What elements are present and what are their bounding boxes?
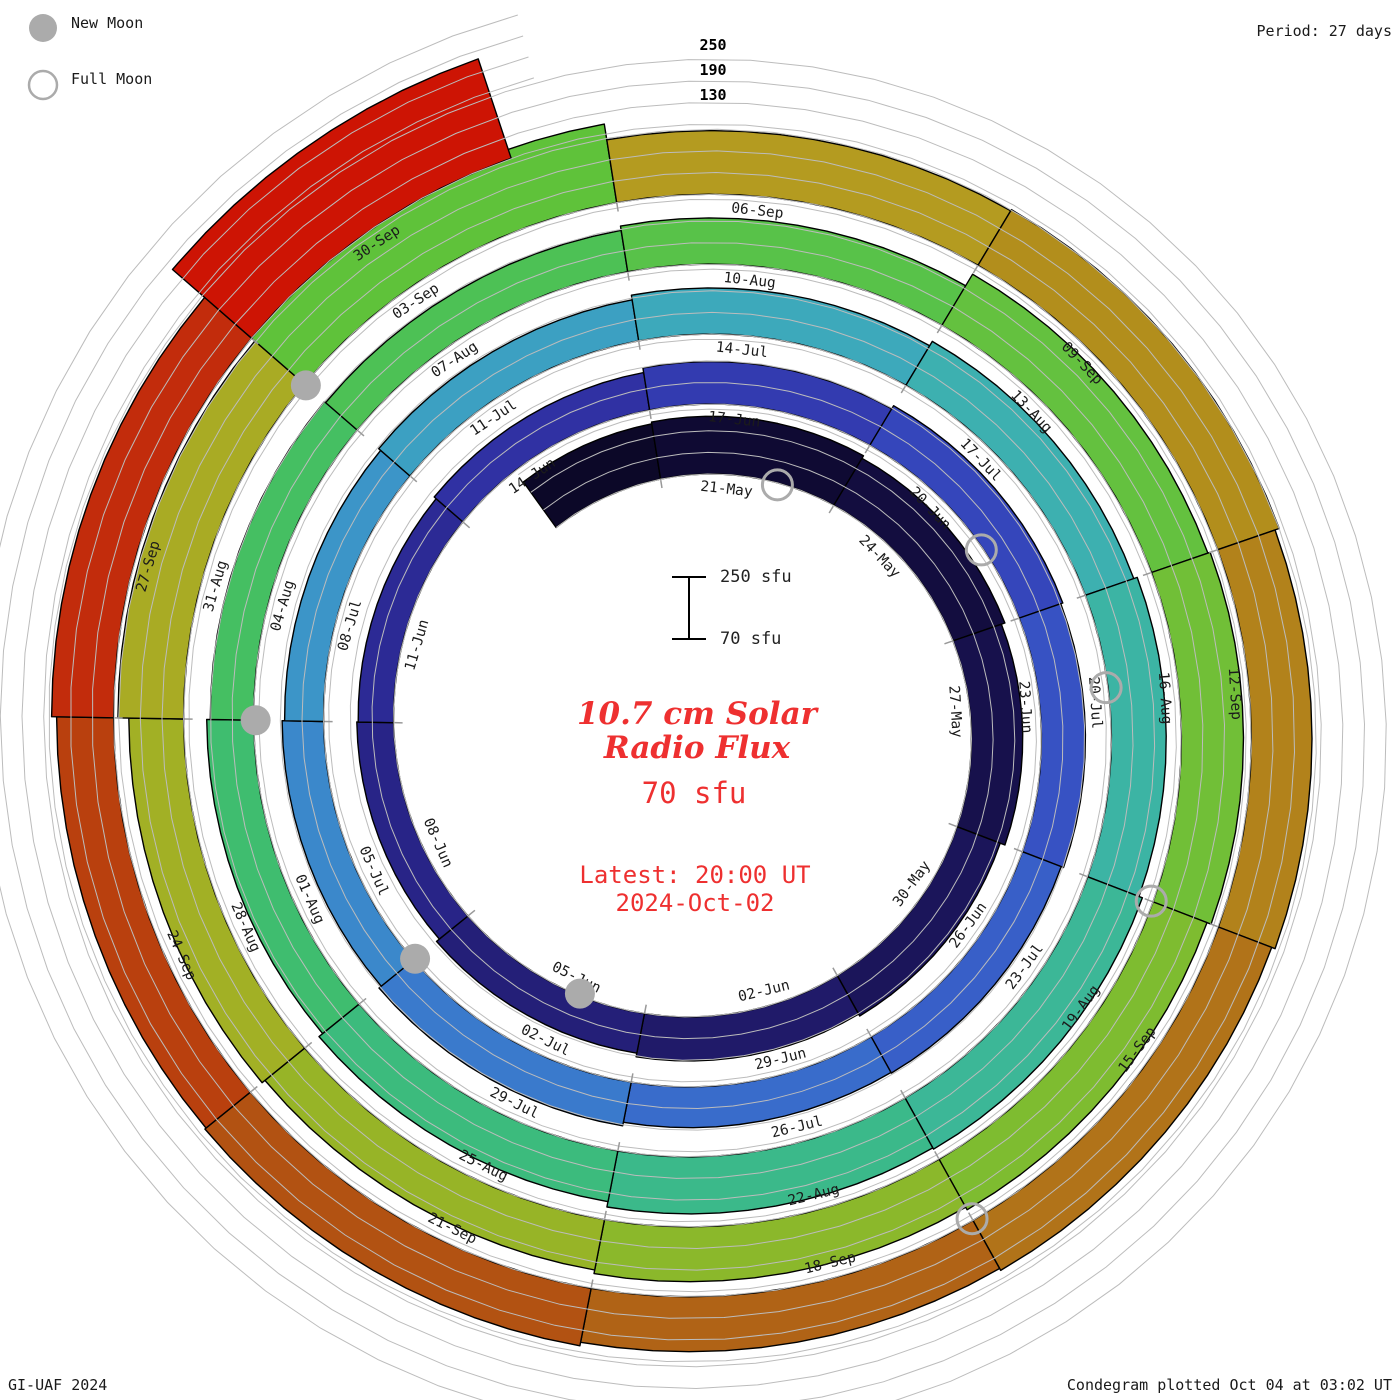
plotted-timestamp: Condegram plotted Oct 04 at 03:02 UT: [1067, 1376, 1392, 1394]
new-moon-marker-05-Jul: [400, 944, 430, 974]
credit-label: GI-UAF 2024: [8, 1376, 107, 1394]
date-tick: [829, 506, 833, 513]
date-tick: [591, 1280, 593, 1288]
flux-scalebar: [655, 565, 725, 655]
full-moon-label: Full Moon: [71, 70, 152, 88]
date-label-21-May: 21-May: [700, 479, 754, 501]
scale-label-250: 250: [699, 36, 726, 54]
date-label-16-Aug: 16-Aug: [1155, 672, 1174, 725]
date-tick: [605, 1211, 607, 1219]
date-tick: [618, 1142, 620, 1150]
chart-title-line2: Radio Flux: [604, 732, 790, 765]
date-tick: [935, 1151, 939, 1158]
current-flux-value: 70 sfu: [642, 776, 747, 810]
date-label-12-Sep: 12-Sep: [1225, 667, 1244, 720]
date-tick: [639, 342, 640, 350]
moon-legend-icons: [24, 4, 64, 124]
period-label: Period: 27 days: [1257, 22, 1392, 40]
date-tick: [617, 204, 618, 212]
full-moon-icon: [29, 71, 57, 99]
new-moon-label: New Moon: [71, 14, 143, 32]
date-tick: [650, 411, 651, 419]
date-tick: [867, 1029, 871, 1036]
date-tick: [469, 910, 475, 915]
date-tick: [661, 480, 662, 488]
date-tick: [464, 523, 470, 528]
scalebar-top-label: 250 sfu: [720, 567, 792, 587]
scale-label-190: 190: [699, 61, 726, 79]
date-label-27-May: 27-May: [945, 685, 964, 739]
date-tick: [949, 823, 956, 826]
date-tick: [944, 641, 952, 644]
date-tick: [645, 1005, 647, 1013]
date-tick: [631, 1073, 633, 1081]
date-label-23-Jun: 23-Jun: [1015, 681, 1034, 734]
latest-time-label: Latest: 20:00 UT: [579, 861, 810, 889]
new-moon-marker-03-Sep: [291, 370, 321, 400]
condegram-page: 21-May24-May27-May30-May02-Jun05-Jun08-J…: [0, 0, 1400, 1400]
date-tick: [628, 273, 629, 281]
scale-label-130: 130: [699, 86, 726, 104]
scalebar-bottom-label: 70 sfu: [720, 629, 781, 649]
date-tick: [901, 386, 905, 393]
latest-date-label: 2024-Oct-02: [616, 889, 775, 917]
new-moon-marker-06-Jun: [565, 979, 595, 1009]
new-moon-marker-04-Aug: [241, 705, 271, 735]
chart-title-line1: 10.7 cm Solar: [577, 698, 817, 731]
date-tick: [833, 968, 837, 975]
date-tick: [973, 266, 977, 273]
new-moon-icon: [29, 14, 57, 42]
